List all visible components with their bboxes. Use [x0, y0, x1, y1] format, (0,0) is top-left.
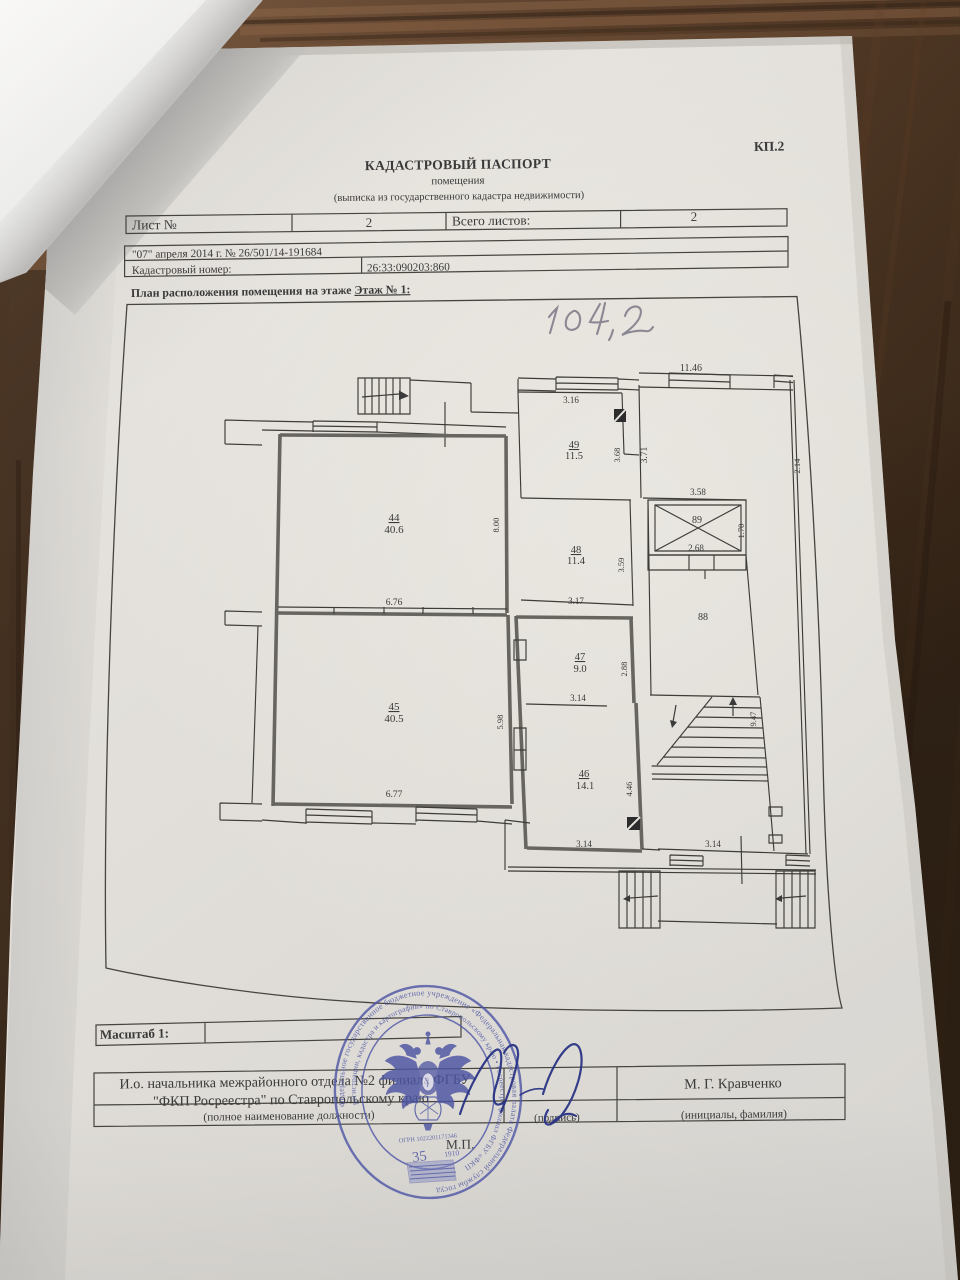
svg-text:48: 48 [571, 545, 582, 556]
svg-text:3.58: 3.58 [690, 487, 706, 497]
svg-text:9.47: 9.47 [748, 712, 758, 727]
svg-text:11.4: 11.4 [567, 556, 586, 567]
svg-text:Масштаб 1:: Масштаб 1: [100, 1025, 169, 1042]
svg-text:КАДАСТРОВЫЙ ПАСПОРТ: КАДАСТРОВЫЙ ПАСПОРТ [365, 155, 551, 173]
svg-text:5.98: 5.98 [495, 715, 505, 730]
svg-text:2: 2 [691, 209, 698, 224]
svg-text:3.59: 3.59 [616, 558, 626, 573]
svg-text:3.14: 3.14 [705, 839, 721, 849]
svg-text:3.71: 3.71 [640, 446, 650, 463]
svg-text:3.16: 3.16 [563, 395, 579, 405]
svg-text:40.5: 40.5 [384, 713, 404, 725]
svg-text:КП.2: КП.2 [754, 138, 785, 154]
svg-text:помещения: помещения [431, 175, 484, 188]
svg-text:4.46: 4.46 [624, 782, 634, 797]
svg-text:14.1: 14.1 [576, 781, 594, 792]
svg-text:6.76: 6.76 [386, 598, 403, 608]
svg-text:45: 45 [389, 701, 401, 713]
svg-text:(инициалы, фамилия): (инициалы, фамилия) [681, 1108, 787, 1121]
svg-text:11.5: 11.5 [565, 451, 583, 462]
svg-text:46: 46 [579, 769, 590, 780]
svg-text:2: 2 [366, 215, 373, 230]
svg-text:44: 44 [389, 512, 401, 524]
svg-text:3.14: 3.14 [576, 839, 592, 849]
svg-text:Лист №: Лист № [132, 217, 177, 233]
svg-text:(полное наименование должности: (полное наименование должности) [203, 1109, 374, 1123]
svg-text:8.00: 8.00 [491, 518, 501, 533]
svg-text:Всего листов:: Всего листов: [452, 213, 531, 229]
svg-text:6.77: 6.77 [386, 790, 403, 800]
svg-text:11.46: 11.46 [680, 363, 702, 374]
svg-text:40.6: 40.6 [384, 524, 404, 536]
svg-text:2.88: 2.88 [619, 662, 629, 677]
svg-text:9.0: 9.0 [573, 664, 586, 675]
svg-text:49: 49 [569, 440, 580, 451]
svg-text:Кадастровый номер:: Кадастровый номер: [132, 264, 232, 277]
svg-text:47: 47 [575, 652, 586, 663]
svg-text:3.14: 3.14 [570, 693, 586, 703]
svg-text:М. Г. Кравченко: М. Г. Кравченко [684, 1075, 782, 1092]
svg-text:3.68: 3.68 [612, 448, 622, 463]
svg-text:89: 89 [692, 515, 702, 526]
svg-text:26:33:090203:860: 26:33:090203:860 [367, 261, 450, 274]
svg-text:1.70: 1.70 [736, 524, 746, 539]
svg-text:2.68: 2.68 [688, 543, 704, 553]
svg-text:3.17: 3.17 [568, 596, 584, 606]
svg-text:88: 88 [698, 612, 708, 623]
svg-text:2.14: 2.14 [792, 458, 802, 474]
